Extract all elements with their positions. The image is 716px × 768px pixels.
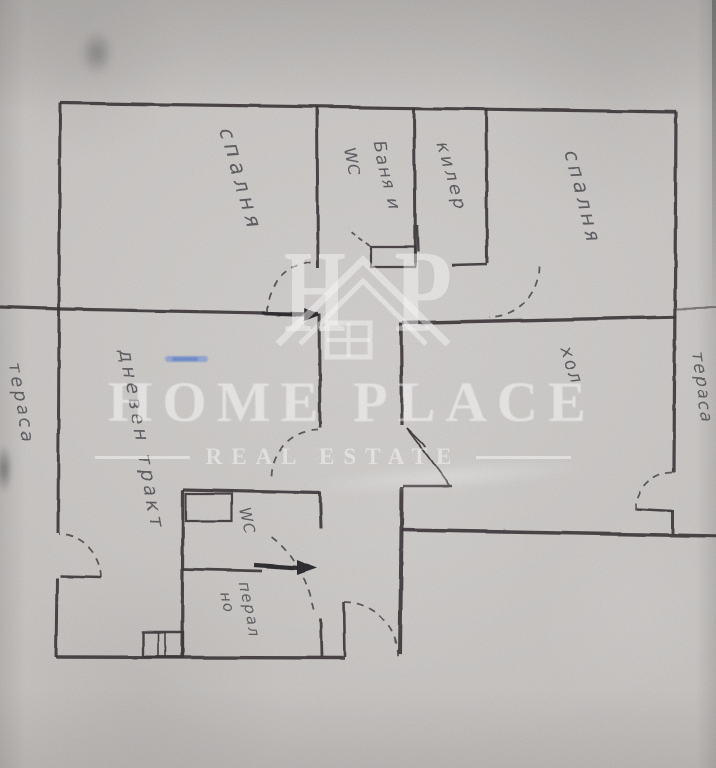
label-terrace-left: тераса: [4, 361, 39, 446]
label-bedroom-top-left: спалня: [215, 125, 268, 235]
floorplan-drawing: спалня Баня и WC килер спалня тераса тер…: [0, 0, 716, 768]
label-terrace-right: тераса: [688, 350, 716, 425]
pen-annotations: [254, 308, 320, 575]
wall-bottom: [56, 657, 345, 658]
arrow-annotation-bottom: [254, 565, 299, 568]
wall-hall-left-upper: [401, 323, 402, 425]
arrow-annotation-top: [262, 313, 305, 315]
label-hall: хол: [555, 343, 588, 388]
wall-top: [60, 103, 676, 112]
wall-bath-right: [414, 107, 415, 263]
label-bedroom-top-right: спалня: [560, 147, 607, 248]
wall-wc-laundry-divider: [183, 569, 262, 571]
bath-door-arc: [349, 229, 370, 246]
bedroom-left-door-arc: [267, 262, 317, 312]
wall-hall-left-lower: [400, 487, 402, 654]
bath-door-leaf: [371, 247, 415, 267]
terrace-right-door-leaf: [636, 509, 673, 511]
wall-closet-right: [486, 108, 487, 263]
bedroom-right-door-arc: [489, 267, 539, 317]
wall-bath-left: [317, 106, 318, 268]
wall-left-lower: [56, 578, 57, 657]
label-closet: килер: [432, 140, 472, 215]
label-laundry-line2: но: [217, 591, 239, 615]
wall-hall-bottom: [402, 530, 716, 536]
label-bathroom-line1: Баня и: [368, 139, 404, 214]
blue-pen-mark: [165, 356, 208, 362]
room-labels: спалня Баня и WC килер спалня тераса тер…: [4, 125, 716, 640]
terrace-left-door-arc: [59, 534, 101, 577]
wc-door-arc: [272, 537, 315, 615]
wall-terrace-right-top: [676, 308, 716, 309]
wall-right-upper: [674, 112, 676, 472]
wall-hall-top: [402, 317, 676, 323]
label-laundry-line1: перал: [235, 580, 264, 640]
scanned-floorplan-page: спалня Баня и WC килер спалня тераса тер…: [0, 0, 716, 768]
living-door-arc: [344, 602, 398, 657]
label-living-area: дневен тракт: [115, 346, 169, 532]
wall-closet-bottom: [452, 264, 487, 265]
wall-left-upper: [58, 103, 60, 533]
label-bathroom-line2: WC: [339, 146, 364, 179]
closet-door-jamb: [417, 225, 418, 252]
duct-shaft: [143, 632, 183, 657]
walls: [0, 103, 716, 658]
living-door-leaf: [344, 602, 345, 657]
hall-door-leaf-edge: [407, 428, 426, 447]
wall-vestibule-left: [319, 314, 320, 428]
terrace-left-door-leaf: [60, 576, 101, 577]
arrow-head-bottom: [297, 560, 317, 575]
wall-wc-right-lower: [321, 618, 322, 657]
wc-fixture: [186, 494, 232, 521]
